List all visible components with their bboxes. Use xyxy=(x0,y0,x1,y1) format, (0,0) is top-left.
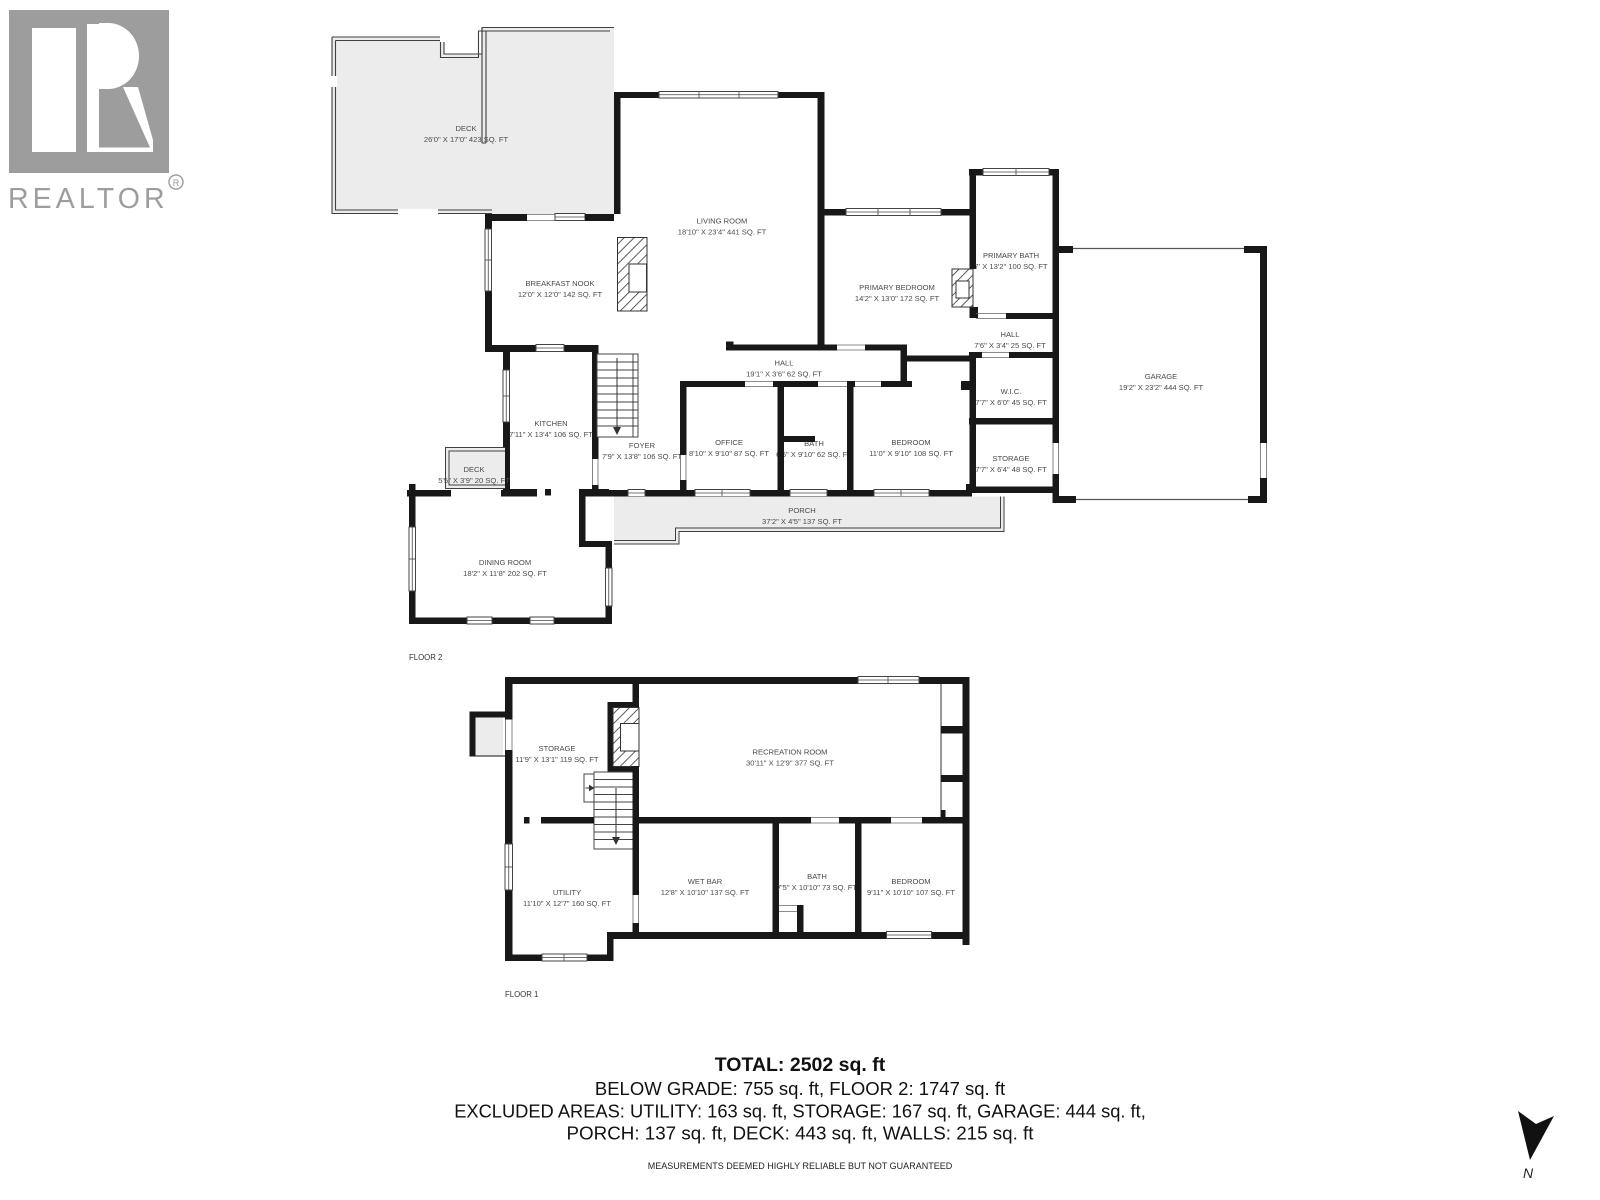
svg-text:19'2" X 23'2" 444 SQ. FT: 19'2" X 23'2" 444 SQ. FT xyxy=(1119,383,1204,392)
svg-text:PORCH: PORCH xyxy=(788,506,815,515)
svg-text:PORCH: 137 sq. ft, DECK: 443 s: PORCH: 137 sq. ft, DECK: 443 sq. ft, WAL… xyxy=(567,1123,1035,1144)
svg-text:11'10" X 12'7" 160 SQ. FT: 11'10" X 12'7" 160 SQ. FT xyxy=(523,899,611,908)
svg-text:REALTOR: REALTOR xyxy=(8,183,168,215)
svg-text:18'10" X 23'4" 441 SQ. FT: 18'10" X 23'4" 441 SQ. FT xyxy=(678,228,767,237)
svg-text:HALL: HALL xyxy=(775,359,794,368)
svg-text:W.I.C.: W.I.C. xyxy=(1001,387,1022,396)
svg-text:30'11" X 12'9" 377 SQ. FT: 30'11" X 12'9" 377 SQ. FT xyxy=(746,759,834,768)
svg-text:HALL: HALL xyxy=(1001,330,1020,339)
svg-text:7' X 13'2" 100 SQ. FT: 7' X 13'2" 100 SQ. FT xyxy=(974,262,1047,271)
svg-text:R: R xyxy=(173,178,180,188)
svg-text:UTILITY: UTILITY xyxy=(553,888,581,897)
svg-text:BELOW GRADE: 755 sq. ft, FLOOR: BELOW GRADE: 755 sq. ft, FLOOR 2: 1747 s… xyxy=(595,1078,1005,1099)
svg-text:GARAGE: GARAGE xyxy=(1145,372,1178,381)
svg-text:12'8" X 10'10" 137 SQ. FT: 12'8" X 10'10" 137 SQ. FT xyxy=(661,888,750,897)
svg-text:N: N xyxy=(1523,1165,1534,1181)
svg-text:DECK: DECK xyxy=(463,465,484,474)
svg-text:LIVING ROOM: LIVING ROOM xyxy=(697,217,748,226)
svg-text:FOYER: FOYER xyxy=(629,441,656,450)
svg-text:PRIMARY BATH: PRIMARY BATH xyxy=(983,251,1039,260)
svg-text:7'11" X 13'4" 106 SQ. FT: 7'11" X 13'4" 106 SQ. FT xyxy=(509,430,593,439)
svg-text:DINING ROOM: DINING ROOM xyxy=(479,558,531,567)
svg-text:11'0" X 9'10" 108 SQ. FT: 11'0" X 9'10" 108 SQ. FT xyxy=(869,449,953,458)
svg-text:6'5" X 9'10" 62 SQ. FT: 6'5" X 9'10" 62 SQ. FT xyxy=(776,450,852,459)
svg-text:FLOOR 1: FLOOR 1 xyxy=(505,990,538,999)
svg-text:BATH: BATH xyxy=(807,872,827,881)
svg-text:7'6" X 3'4" 25 SQ. FT: 7'6" X 3'4" 25 SQ. FT xyxy=(974,341,1046,350)
svg-text:7'7" X 6'4" 48 SQ. FT: 7'7" X 6'4" 48 SQ. FT xyxy=(975,465,1047,474)
svg-text:5'5" X 3'9" 20 SQ. FT: 5'5" X 3'9" 20 SQ. FT xyxy=(438,476,510,485)
svg-text:9'11" X 10'10" 107 SQ. FT: 9'11" X 10'10" 107 SQ. FT xyxy=(867,888,955,897)
svg-text:PRIMARY BEDROOM: PRIMARY BEDROOM xyxy=(859,283,935,292)
svg-text:KITCHEN: KITCHEN xyxy=(534,419,567,428)
svg-text:FLOOR 2: FLOOR 2 xyxy=(409,653,442,662)
svg-text:7'9" X 13'8" 106 SQ. FT: 7'9" X 13'8" 106 SQ. FT xyxy=(602,452,682,461)
svg-text:BEDROOM: BEDROOM xyxy=(891,438,930,447)
svg-text:TOTAL: 2502 sq. ft: TOTAL: 2502 sq. ft xyxy=(715,1054,886,1076)
svg-text:RECREATION ROOM: RECREATION ROOM xyxy=(753,748,828,757)
svg-text:19'1" X 3'6" 62 SQ. FT: 19'1" X 3'6" 62 SQ. FT xyxy=(746,370,822,379)
svg-text:11'9" X 13'1" 119 SQ. FT: 11'9" X 13'1" 119 SQ. FT xyxy=(515,755,599,764)
svg-text:MEASUREMENTS DEEMED HIGHLY REL: MEASUREMENTS DEEMED HIGHLY RELIABLE BUT … xyxy=(648,1161,953,1171)
svg-text:BREAKFAST NOOK: BREAKFAST NOOK xyxy=(525,279,594,288)
svg-text:37'2" X 4'5" 137 SQ. FT: 37'2" X 4'5" 137 SQ. FT xyxy=(762,517,842,526)
svg-text:OFFICE: OFFICE xyxy=(715,438,743,447)
svg-text:DECK: DECK xyxy=(455,124,476,133)
svg-text:STORAGE: STORAGE xyxy=(539,744,576,753)
svg-text:18'2" X 11'8" 202 SQ. FT: 18'2" X 11'8" 202 SQ. FT xyxy=(463,569,547,578)
svg-text:12'0" X 12'0" 142 SQ. FT: 12'0" X 12'0" 142 SQ. FT xyxy=(518,290,603,299)
svg-text:26'0" X 17'0" 423 SQ. FT: 26'0" X 17'0" 423 SQ. FT xyxy=(424,135,509,144)
svg-text:STORAGE: STORAGE xyxy=(993,454,1030,463)
svg-text:BEDROOM: BEDROOM xyxy=(891,877,930,886)
svg-text:EXCLUDED AREAS: UTILITY: 163 s: EXCLUDED AREAS: UTILITY: 163 sq. ft, STO… xyxy=(454,1101,1146,1122)
svg-text:7'5" X 10'10" 73 SQ. FT: 7'5" X 10'10" 73 SQ. FT xyxy=(777,883,857,892)
svg-text:8'10" X 9'10" 87 SQ. FT: 8'10" X 9'10" 87 SQ. FT xyxy=(689,449,769,458)
svg-text:14'2" X 13'0" 172 SQ. FT: 14'2" X 13'0" 172 SQ. FT xyxy=(855,294,940,303)
svg-text:7'7" X 6'0" 45 SQ. FT: 7'7" X 6'0" 45 SQ. FT xyxy=(975,398,1047,407)
svg-text:WET BAR: WET BAR xyxy=(688,877,723,886)
